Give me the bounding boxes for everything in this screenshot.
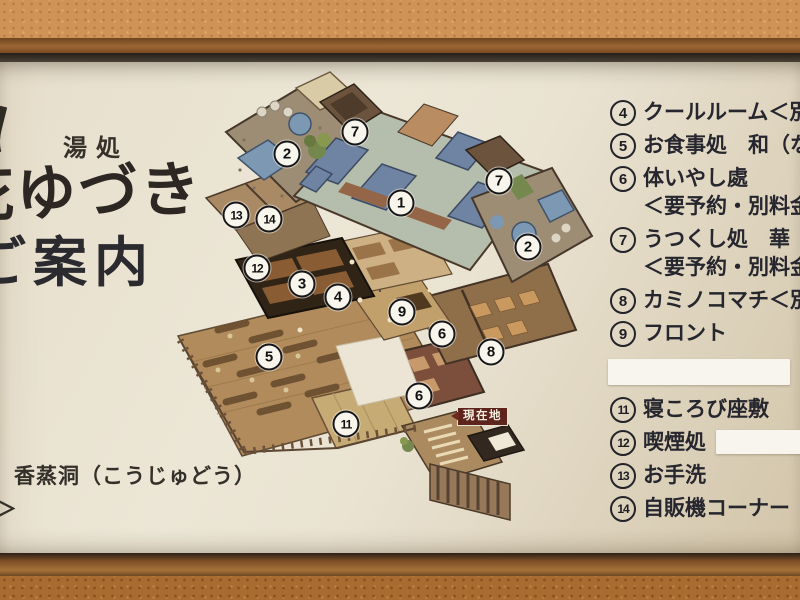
- guide-sign-board: 湯処 花ゆづき ご案内: [0, 62, 800, 553]
- legend-number: 11: [610, 397, 636, 423]
- stucco-wall-top: [0, 0, 800, 38]
- legend-number: 6: [610, 166, 636, 192]
- photo-of-guide-sign: 湯処 花ゆづき ご案内: [0, 0, 800, 600]
- legend-label: お食事処 和（な: [643, 132, 800, 160]
- legend-item-8: 8カミノコマチ＜別料: [610, 287, 800, 315]
- legend-label: うつくし処 華（は＜要予約・別料金＞: [643, 226, 800, 282]
- legend-label: 自販機コーナー: [643, 495, 790, 523]
- footnote-text: 香蒸洞（こうじゅどう）: [14, 460, 256, 490]
- legend-label: お手洗: [643, 462, 706, 490]
- legend-item-13: 13お手洗: [610, 462, 800, 490]
- legend-item-14: 14自販機コーナー: [610, 495, 800, 523]
- clipped-text-fragment: ＞: [0, 492, 17, 524]
- wood-frame-top: [0, 38, 800, 53]
- legend-item-7: 7うつくし処 華（は＜要予約・別料金＞: [610, 226, 800, 282]
- current-location-badge: 現在地: [457, 407, 508, 426]
- legend-label: 体いやし處＜要予約・別料金＞: [643, 165, 800, 221]
- legend-number: 4: [610, 100, 636, 126]
- blank-sticker-inline: [716, 430, 800, 454]
- legend-item-9: 9フロント: [610, 320, 800, 348]
- legend-number: 13: [610, 463, 636, 489]
- legend-item-5: 5お食事処 和（な: [610, 132, 800, 160]
- legend-number: 7: [610, 227, 636, 253]
- legend-item-11: 11寝ころび座敷: [610, 396, 800, 424]
- legend: 4クールルーム＜別5お食事処 和（な6体いやし處＜要予約・別料金＞7うつくし処 …: [610, 99, 800, 523]
- legend-label: 寝ころび座敷: [643, 396, 769, 424]
- legend-label: フロント: [643, 320, 727, 348]
- legend-label: カミノコマチ＜別料: [643, 287, 800, 315]
- legend-label: クールルーム＜別: [643, 99, 800, 127]
- legend-label: 喫煙処: [643, 429, 800, 457]
- legend-item-6: 6体いやし處＜要予約・別料金＞: [610, 165, 800, 221]
- frame-shadow: [0, 53, 800, 62]
- legend-number: 9: [610, 321, 636, 347]
- legend-number: 8: [610, 288, 636, 314]
- wood-frame-bottom: [0, 553, 800, 576]
- legend-number: 14: [610, 496, 636, 522]
- stucco-wall-bottom: [0, 576, 800, 600]
- blank-sticker: [608, 359, 790, 385]
- legend-item-12: 12喫煙処: [610, 429, 800, 457]
- legend-number: 5: [610, 133, 636, 159]
- legend-item-4: 4クールルーム＜別: [610, 99, 800, 127]
- legend-number: 12: [610, 430, 636, 456]
